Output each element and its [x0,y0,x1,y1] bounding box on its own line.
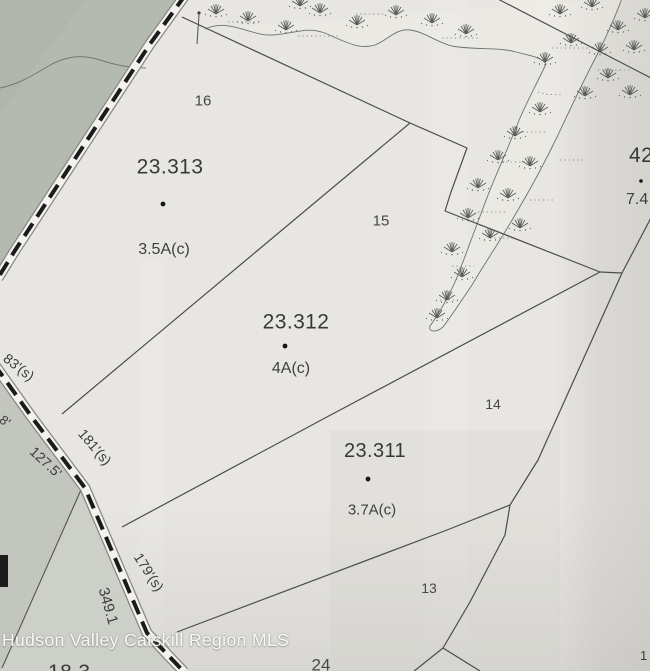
edge-black-bar [0,555,8,587]
parcel-label-42: 42 [629,145,650,166]
parcel-dot-23312 [283,344,288,349]
map-drawing [0,0,650,671]
parcel-dot-23311 [366,477,371,482]
tax-parcel-map: 16 23.313 3.5A(c) 15 23.312 4A(c) 14 23.… [0,0,650,671]
acreage-label-23313: 3.5A(c) [138,242,190,258]
acreage-label-23311: 3.7A(c) [348,503,396,518]
lot-number-13: 13 [421,581,437,595]
lot-number-14: 14 [485,397,501,411]
parcel-label-23313: 23.313 [137,157,204,178]
lot-number-16: 16 [195,94,212,109]
acreage-label-23312: 4A(c) [272,361,310,377]
edge-fragment-1: 1 [640,649,647,662]
parcel-dot-23313 [161,202,166,207]
acreage-label-42: 7.4 [626,192,648,208]
parcel-dot-42 [639,179,643,183]
lot-number-15: 15 [373,214,390,229]
edge-fragment-bottom-left: 18.3 [48,662,90,671]
parcel-label-23311: 23.311 [344,441,406,461]
survey-marker-dot [197,11,200,14]
parcel-label-23312: 23.312 [263,312,330,333]
mls-watermark: Hudson Valley Catskill Region MLS [2,630,289,651]
lot-number-24: 24 [312,657,331,671]
